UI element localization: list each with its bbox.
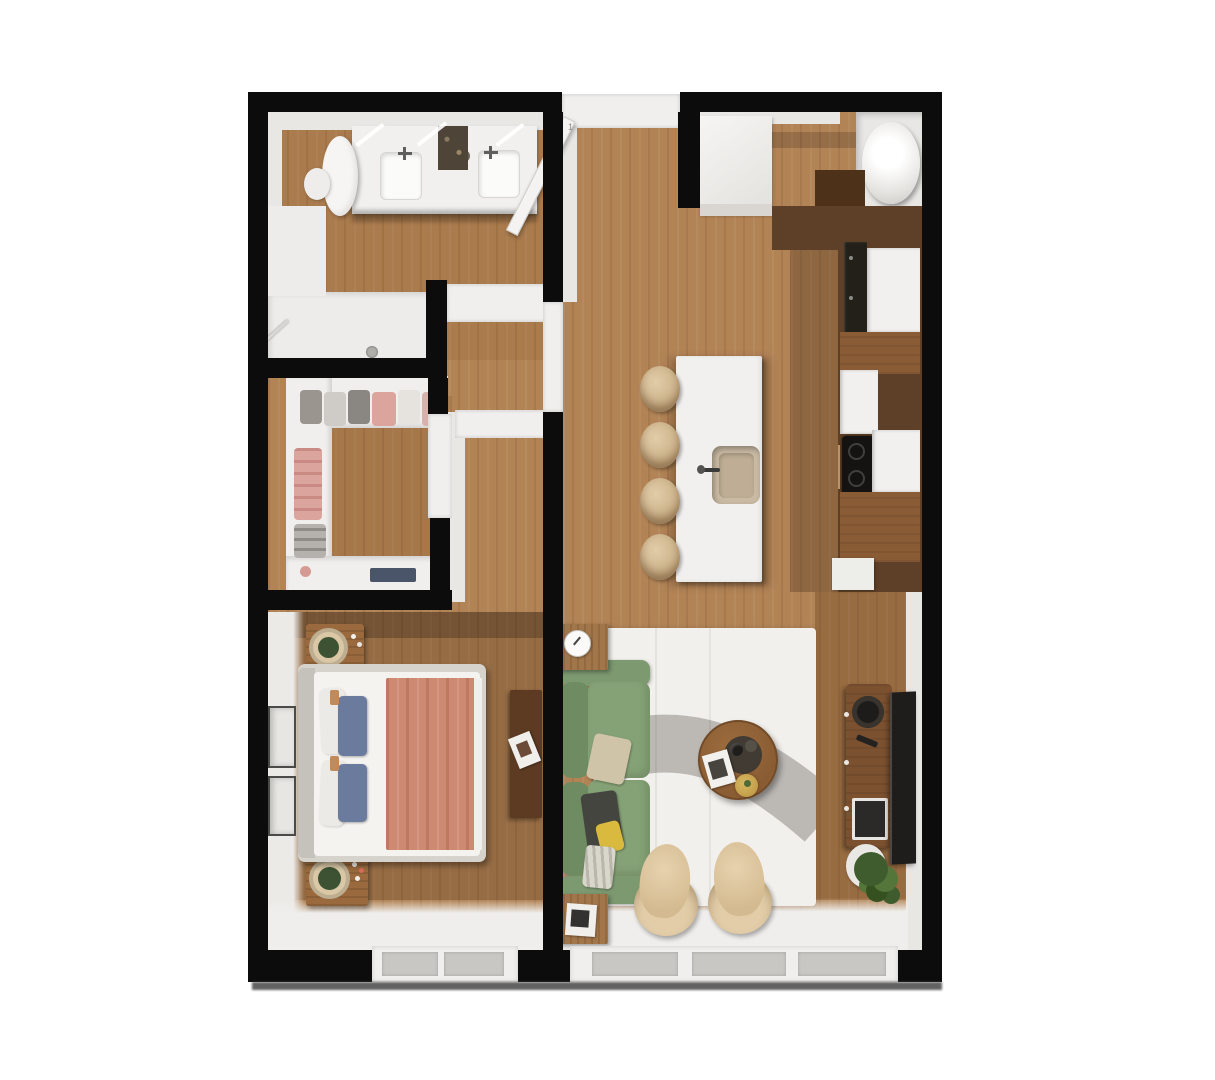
wall-frame-2 bbox=[268, 776, 296, 836]
outer-wall-right bbox=[922, 92, 942, 982]
lamp-north bbox=[309, 628, 348, 667]
closet-door-opening bbox=[428, 414, 452, 518]
water-heater bbox=[862, 122, 920, 204]
tray-cup-2 bbox=[745, 740, 757, 752]
lamp-south bbox=[309, 858, 350, 899]
console-knob-2 bbox=[844, 760, 849, 765]
faucet-right-icon-v bbox=[489, 146, 492, 159]
bedroom-window-pane-2 bbox=[444, 952, 504, 976]
cooktop-burner-2 bbox=[848, 470, 865, 487]
bar-stool-3 bbox=[640, 478, 680, 524]
kitchen-wood-counter-low bbox=[840, 492, 920, 562]
living-window-pane-3 bbox=[798, 952, 886, 976]
hanging-clothes-5 bbox=[398, 390, 420, 424]
kitchen-counter-end bbox=[832, 558, 874, 590]
oven-light-dot-1 bbox=[849, 256, 853, 260]
vanity-shadow bbox=[352, 210, 537, 222]
entry-cabinet-side bbox=[700, 204, 772, 216]
entry-threshold bbox=[562, 94, 680, 128]
outer-wall-bottom-3 bbox=[898, 950, 942, 982]
hanging-clothes-2 bbox=[324, 392, 346, 426]
vanity-sink-left bbox=[380, 152, 422, 200]
bedroom-window-white-floor bbox=[268, 900, 543, 952]
console-media-box bbox=[852, 798, 888, 840]
entry-stub-wall bbox=[678, 112, 700, 208]
folded-clothes-gray bbox=[294, 524, 326, 558]
kitchen-white-cabinet-b bbox=[840, 370, 878, 434]
coffee-table-deco-green bbox=[744, 780, 751, 787]
outer-wall-top-left bbox=[248, 92, 562, 112]
living-window-pane-2 bbox=[692, 952, 786, 976]
bed-trim-1 bbox=[330, 690, 339, 705]
nightstand-north-decor bbox=[351, 634, 356, 639]
bar-stool-1 bbox=[640, 366, 680, 412]
sofa-back-cushion-1 bbox=[560, 682, 590, 778]
bed-headboard bbox=[298, 668, 315, 858]
bed-blanket-fold bbox=[474, 678, 482, 850]
hall-opening bbox=[543, 302, 563, 412]
closet-right-wall-top bbox=[428, 378, 448, 414]
bed-pillow-blue-1 bbox=[338, 696, 367, 756]
vanity-sink-right bbox=[478, 150, 520, 198]
plant-foliage bbox=[854, 852, 888, 886]
sofa-pillow-striped bbox=[582, 845, 616, 890]
kitchen-oven bbox=[844, 242, 867, 334]
table-magazine-cover bbox=[570, 909, 589, 927]
outer-wall-bottom-1 bbox=[248, 950, 372, 982]
kitchen-floor-shadow bbox=[790, 238, 842, 592]
bedroom-living-wall bbox=[543, 412, 563, 950]
cooktop-burner-1 bbox=[848, 443, 865, 460]
plan-ground-shadow bbox=[252, 982, 942, 990]
bathroom-wall-column bbox=[426, 280, 447, 378]
hall-wall-upper bbox=[543, 112, 563, 302]
bed-trim-2 bbox=[330, 756, 339, 771]
closet-bottom-wall bbox=[268, 590, 452, 610]
kitchen-wood-counter-mid bbox=[840, 332, 920, 374]
door-number-label: 1 bbox=[568, 122, 573, 132]
console-knob-1 bbox=[844, 712, 849, 717]
tray-cup-1 bbox=[730, 743, 743, 756]
outer-wall-left bbox=[248, 92, 268, 982]
bed-blanket bbox=[386, 678, 480, 850]
faucet-left-icon-v bbox=[403, 147, 406, 160]
nightstand-south-decor bbox=[352, 862, 357, 867]
mirror-reflection bbox=[438, 126, 468, 170]
shelf-item-pink bbox=[300, 566, 311, 577]
living-window-pane-1 bbox=[592, 952, 678, 976]
bed-pillow-blue-2 bbox=[338, 764, 367, 822]
outer-wall-bottom-2 bbox=[518, 950, 570, 982]
console-speaker bbox=[852, 696, 884, 728]
tv-screen bbox=[890, 691, 916, 864]
table-clock bbox=[564, 630, 591, 657]
shelf-box-blue bbox=[370, 568, 416, 582]
shower-drain bbox=[366, 346, 378, 358]
entry-cabinet bbox=[700, 116, 772, 214]
console-knob-3 bbox=[844, 806, 849, 811]
floor-plan-canvas: 1 bbox=[0, 0, 1215, 1080]
oven-light-dot-2 bbox=[849, 296, 853, 300]
fridge-cabinet bbox=[867, 248, 920, 332]
hanging-clothes-4 bbox=[372, 392, 396, 426]
hanging-clothes-1 bbox=[300, 390, 322, 424]
bathroom-south-wall bbox=[268, 358, 447, 378]
closet-right-wall-bottom bbox=[430, 518, 450, 592]
kitchen-counter-edge-light bbox=[838, 445, 840, 489]
wall-frame-1 bbox=[268, 706, 296, 768]
bedroom-door-opening bbox=[455, 410, 557, 438]
folded-clothes-pink bbox=[294, 448, 322, 520]
bar-stool-2 bbox=[640, 422, 680, 468]
island-sink-basin bbox=[719, 453, 754, 498]
bar-stool-4 bbox=[640, 534, 680, 580]
toilet-tank bbox=[304, 168, 330, 200]
shower-floor bbox=[268, 292, 440, 360]
kitchen-white-cabinet-c bbox=[872, 430, 920, 492]
island-faucet-base bbox=[697, 465, 705, 474]
bedroom-window-pane-1 bbox=[382, 952, 438, 976]
hanging-clothes-3 bbox=[348, 390, 370, 424]
shower-floor-upper bbox=[268, 206, 326, 296]
outer-wall-top-right bbox=[680, 92, 942, 112]
